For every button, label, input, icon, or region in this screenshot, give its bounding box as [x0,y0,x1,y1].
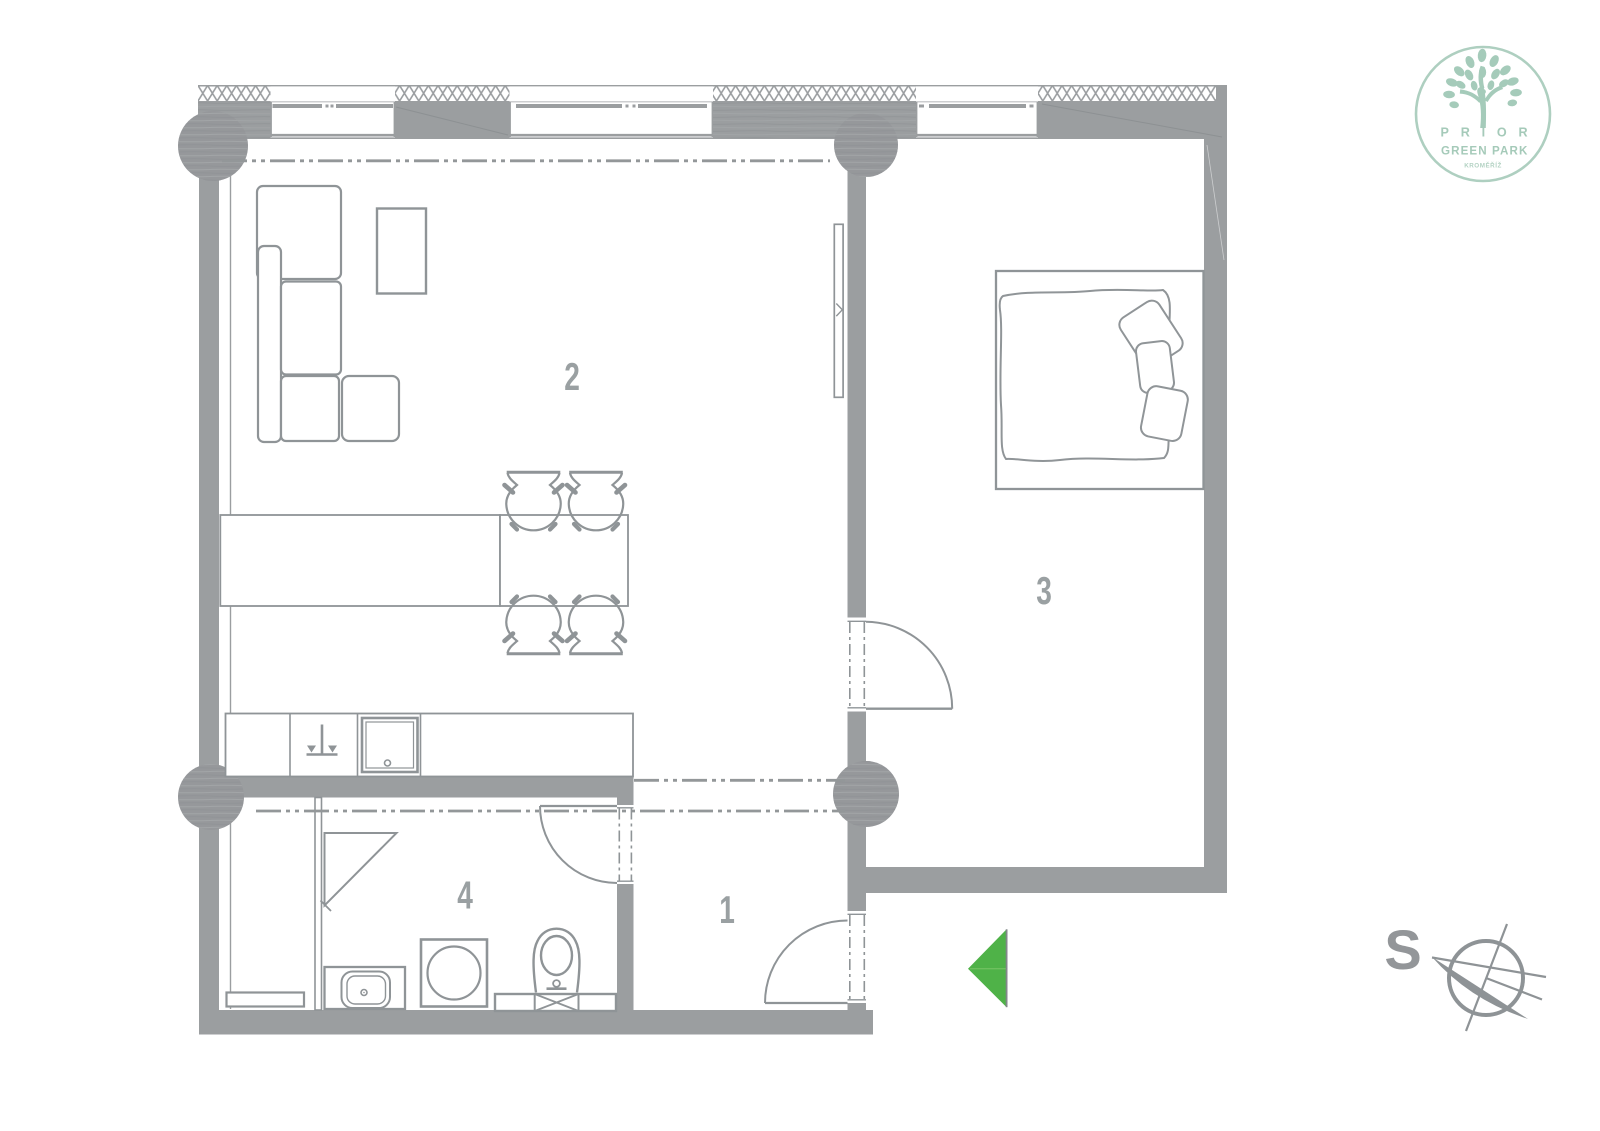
svg-text:S: S [1384,918,1421,981]
svg-text:GREEN PARK: GREEN PARK [1441,145,1528,158]
svg-text:KROMĚŘÍŽ: KROMĚŘÍŽ [1464,161,1502,170]
svg-text:PRIOR: PRIOR [1441,126,1540,140]
svg-text:3: 3 [1036,570,1052,614]
svg-text:1: 1 [719,889,735,933]
svg-text:2: 2 [564,356,580,400]
svg-text:4: 4 [457,874,473,918]
